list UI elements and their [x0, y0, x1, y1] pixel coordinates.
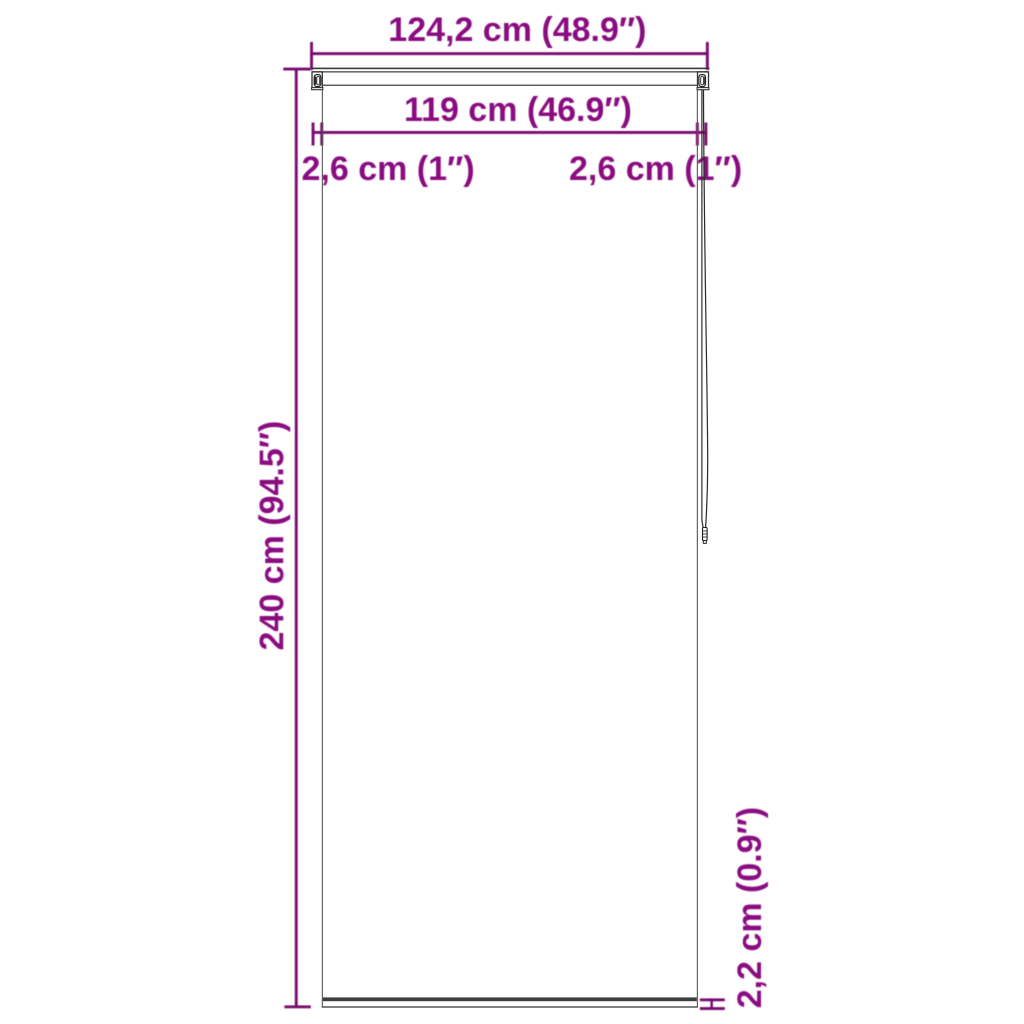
svg-text:119 cm (46.9″): 119 cm (46.9″) [404, 91, 632, 129]
svg-text:240 cm (94.5″): 240 cm (94.5″) [253, 421, 291, 651]
svg-text:2,6 cm (1″): 2,6 cm (1″) [569, 150, 742, 188]
svg-text:2,6 cm (1″): 2,6 cm (1″) [302, 150, 475, 188]
svg-text:124,2 cm (48.9″): 124,2 cm (48.9″) [388, 11, 646, 49]
svg-text:2,2 cm (0.9″): 2,2 cm (0.9″) [731, 807, 769, 1009]
